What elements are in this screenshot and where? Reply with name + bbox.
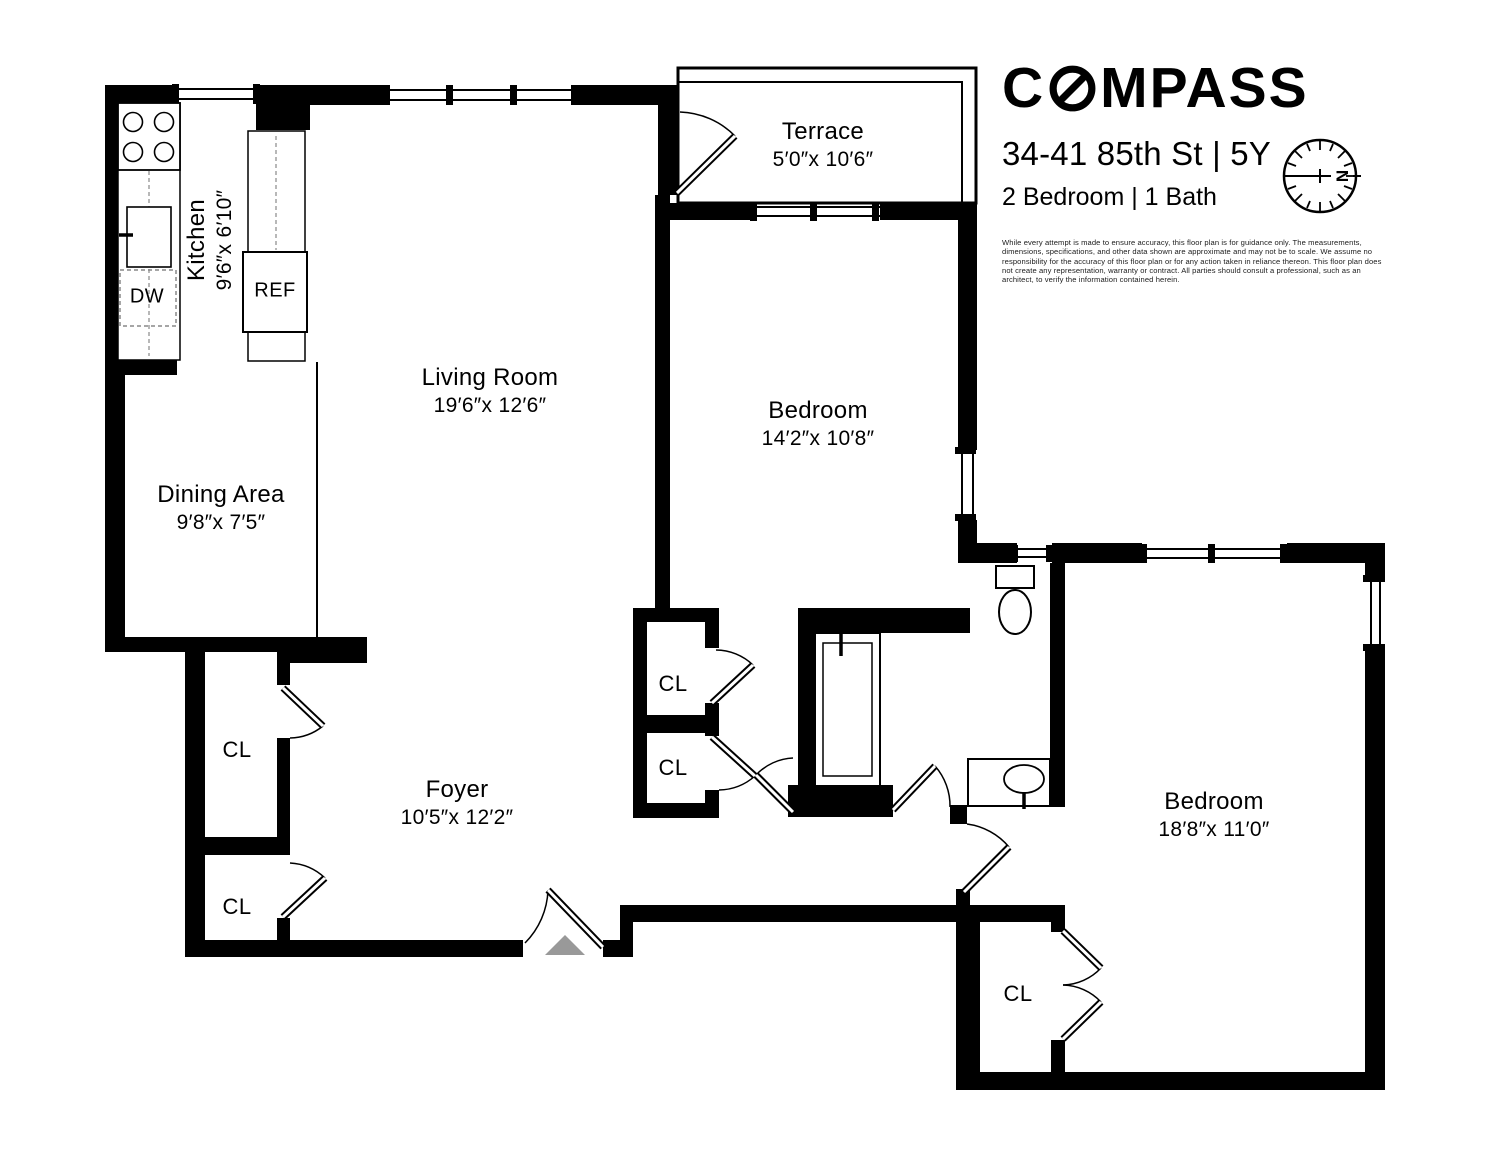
bedroom2-door (964, 824, 1009, 892)
closet-label: CL (658, 671, 687, 697)
stove (118, 103, 180, 170)
room-name: Kitchen (182, 190, 212, 291)
closet-door-foyer-bottom (283, 863, 325, 917)
room-label-kitchen: Kitchen 9′6″x 6′10″ (182, 190, 238, 291)
room-name: Foyer (401, 775, 514, 805)
room-dims: 14′2″x 10′8″ (762, 426, 875, 452)
closet-door-foyer-top (283, 688, 323, 738)
logo-text-pre: C (1002, 60, 1045, 117)
room-name: Dining Area (157, 480, 284, 510)
room-label-bedroom-1: Bedroom 14′2″x 10′8″ (762, 396, 875, 452)
kitchen-sink (119, 207, 171, 267)
bathroom-sink (968, 759, 1050, 809)
room-name: Bedroom (1158, 787, 1269, 817)
bedroom2-closet-bifold-doors (1063, 931, 1101, 1039)
floorplan-page: N Kitchen 9′6″x 6′10″ Dining Area 9′8″x … (0, 0, 1490, 1152)
entry-marker (545, 935, 585, 955)
header: C MPASS 34-41 85th St | 5Y 2 Bedroom | 1… (1002, 60, 1382, 292)
compass-logo-o-icon (1046, 62, 1099, 115)
unit-summary: 2 Bedroom | 1 Bath (1002, 183, 1382, 212)
closet-label: CL (222, 894, 251, 920)
room-label-terrace: Terrace 5′0″x 10′6″ (773, 117, 874, 173)
doors (283, 112, 1101, 1039)
dishwasher-label: DW (130, 286, 164, 309)
room-dims: 10′5″x 12′2″ (401, 805, 514, 831)
closet-label: CL (222, 737, 251, 763)
room-label-dining-area: Dining Area 9′8″x 7′5″ (157, 480, 284, 536)
bathroom-door (893, 766, 950, 810)
closet-door-hall-top (712, 650, 753, 703)
room-dims: 9′6″x 6′10″ (212, 190, 238, 291)
compass-logo: C MPASS (1002, 60, 1382, 117)
room-label-foyer: Foyer 10′5″x 12′2″ (401, 775, 514, 831)
room-label-bedroom-2: Bedroom 18′8″x 11′0″ (1158, 787, 1269, 843)
hall-door (756, 758, 793, 812)
refrigerator (243, 131, 307, 361)
room-label-living-room: Living Room 19′6″x 12′6″ (422, 363, 559, 419)
disclaimer: While every attempt is made to ensure ac… (1002, 238, 1382, 284)
closet-label: CL (1003, 981, 1032, 1007)
room-name: Bedroom (762, 396, 875, 426)
logo-text-post: MPASS (1100, 60, 1308, 117)
bathtub (815, 631, 880, 786)
toilet (996, 566, 1034, 634)
room-dims: 19′6″x 12′6″ (422, 393, 559, 419)
terrace-door (677, 112, 735, 193)
address: 34-41 85th St | 5Y (1002, 135, 1382, 173)
room-name: Living Room (422, 363, 559, 393)
refrigerator-label: REF (254, 280, 296, 303)
room-dims: 5′0″x 10′6″ (773, 147, 874, 173)
room-dims: 18′8″x 11′0″ (1158, 817, 1269, 843)
room-dims: 9′8″x 7′5″ (157, 510, 284, 536)
closet-label: CL (658, 755, 687, 781)
room-name: Terrace (773, 117, 874, 147)
closet-door-hall-bottom (712, 737, 755, 790)
